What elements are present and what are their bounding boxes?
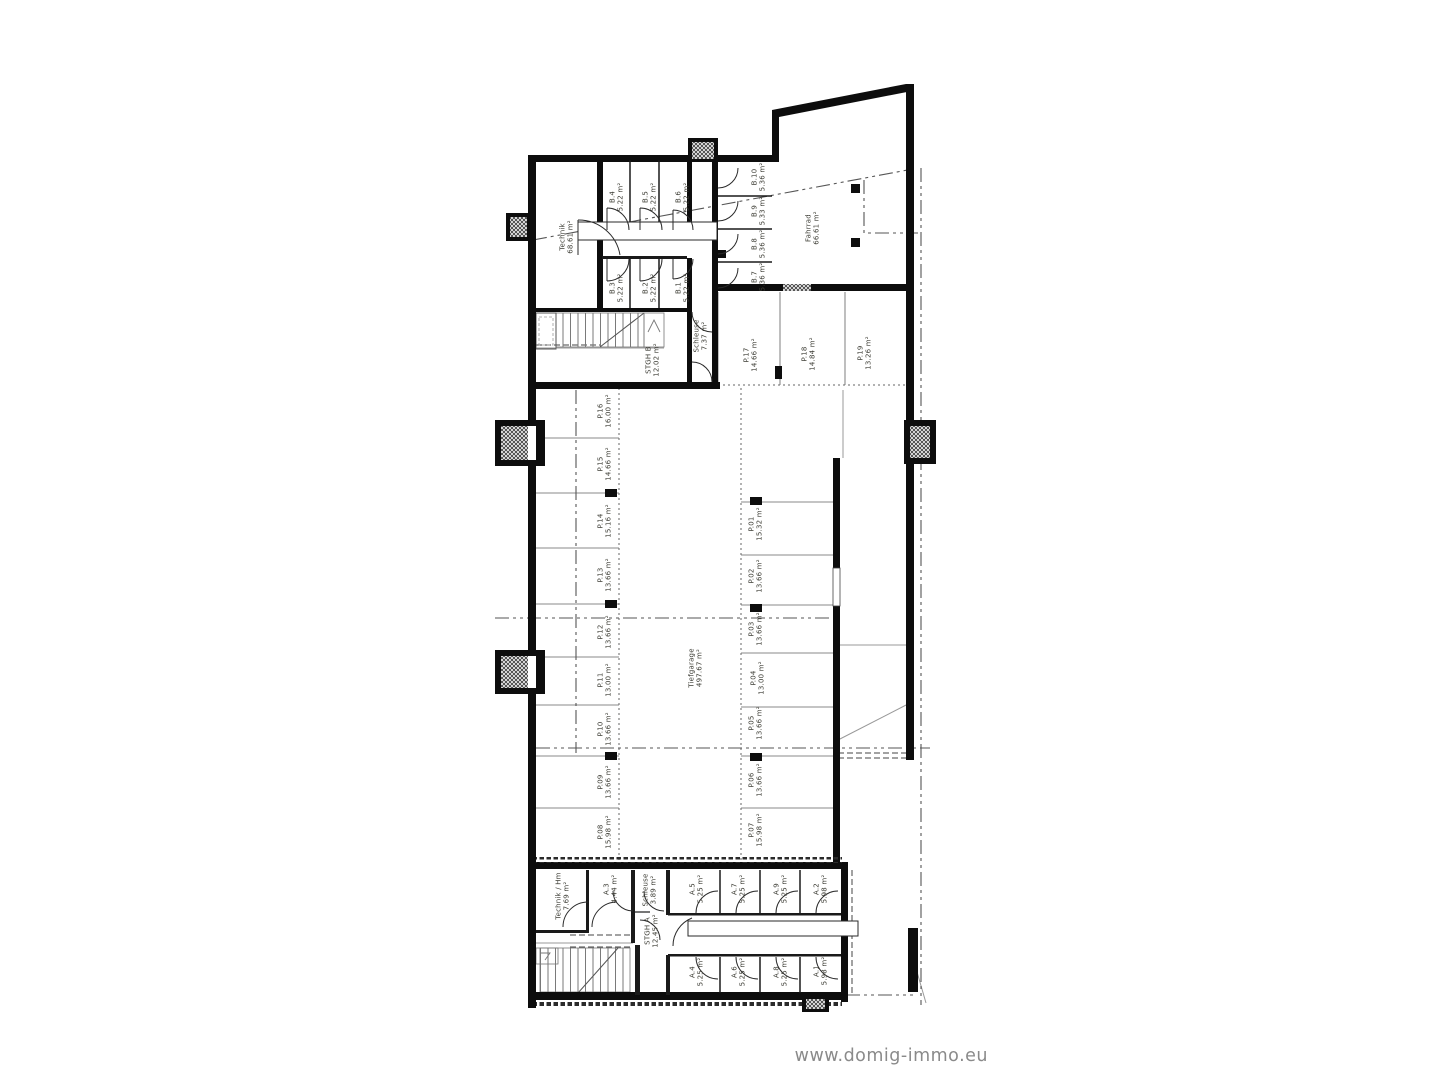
room-label-p11: P.1113.00 m² <box>597 663 613 697</box>
room-label-b6: B.65.22 m² <box>675 183 691 212</box>
room-label-p09: P.0913.66 m² <box>597 765 613 799</box>
room-label-p10: P.1013.66 m² <box>597 712 613 746</box>
room-label-technik-a: Technik / Hm7.69 m² <box>555 872 571 920</box>
room-label-a4: A.45.25 m² <box>689 958 705 987</box>
room-label-stgh-b: STGH B12.02 m² <box>645 343 661 377</box>
room-label-a9: A.95.25 m² <box>773 875 789 904</box>
room-label-p13: P.1313.66 m² <box>597 558 613 592</box>
room-label-b3: B.35.22 m² <box>609 274 625 303</box>
room-label-b5: B.55.22 m² <box>642 183 658 212</box>
room-label-b2: B.25.22 m² <box>642 274 658 303</box>
floor-plan-svg: Technik68.61 m²B.45.22 m²B.55.22 m²B.65.… <box>0 0 1436 1077</box>
floor-plan: Technik68.61 m²B.45.22 m²B.55.22 m²B.65.… <box>0 0 1436 1077</box>
room-label-p12: P.1213.66 m² <box>597 615 613 649</box>
room-label-a5: A.55.25 m² <box>689 875 705 904</box>
room-label-technik-b: Technik68.61 m² <box>559 220 575 254</box>
room-label-p01: P.0115.32 m² <box>748 507 764 541</box>
room-label-a1: A.15.98 m² <box>813 957 829 986</box>
room-label-b9: B.95.33 m² <box>751 197 767 226</box>
room-label-b10: B.105.36 m² <box>751 163 767 192</box>
room-label-p14: P.1415.16 m² <box>597 504 613 538</box>
room-label-p07: P.0715.98 m² <box>748 813 764 847</box>
parking-stall-lines <box>536 292 926 1003</box>
room-label-b1: B.15.22 m² <box>675 274 691 303</box>
room-label-p18: P.1814.84 m² <box>801 337 817 371</box>
room-label-p03: P.0313.66 m² <box>748 612 764 646</box>
room-label-schleuse-a: Schleuse3.89 m² <box>642 874 658 907</box>
room-label-fahrrad: Fahrrad66.61 m² <box>805 211 821 245</box>
watermark-text: www.domig-immo.eu <box>795 1046 988 1066</box>
room-label-tiefgarage: Tiefgarage497.67 m² <box>688 648 704 688</box>
room-label-stgh-a: STGH A12.45 m² <box>644 914 660 948</box>
insulation-strips <box>536 284 842 1006</box>
room-label-b4: B.45.22 m² <box>609 183 625 212</box>
room-label-a3: A.34.44 m² <box>603 875 619 904</box>
pillars <box>605 184 860 761</box>
room-label-p16: P.1616.00 m² <box>597 394 613 428</box>
room-label-schleuse-b: Schleuse7.37 m² <box>693 320 709 353</box>
room-label-b8: B.85.36 m² <box>751 230 767 259</box>
garage-door-opening <box>833 568 840 606</box>
room-label-p06: P.0613.66 m² <box>748 763 764 797</box>
room-label-a2: A.25.98 m² <box>813 875 829 904</box>
room-label-p15: P.1514.66 m² <box>597 447 613 481</box>
room-label-a7: A.75.25 m² <box>731 875 747 904</box>
room-label-a6: A.65.25 m² <box>731 958 747 987</box>
room-label-p05: P.0513.66 m² <box>748 706 764 740</box>
room-label-p04: P.0413.00 m² <box>750 661 766 695</box>
room-label-p17: P.1714.66 m² <box>743 338 759 372</box>
room-label-p02: P.0213.66 m² <box>748 559 764 593</box>
room-label-a8: A.85.25 m² <box>773 958 789 987</box>
room-label-p19: P.1913.26 m² <box>857 336 873 370</box>
room-label-p08: P.0815.98 m² <box>597 815 613 849</box>
